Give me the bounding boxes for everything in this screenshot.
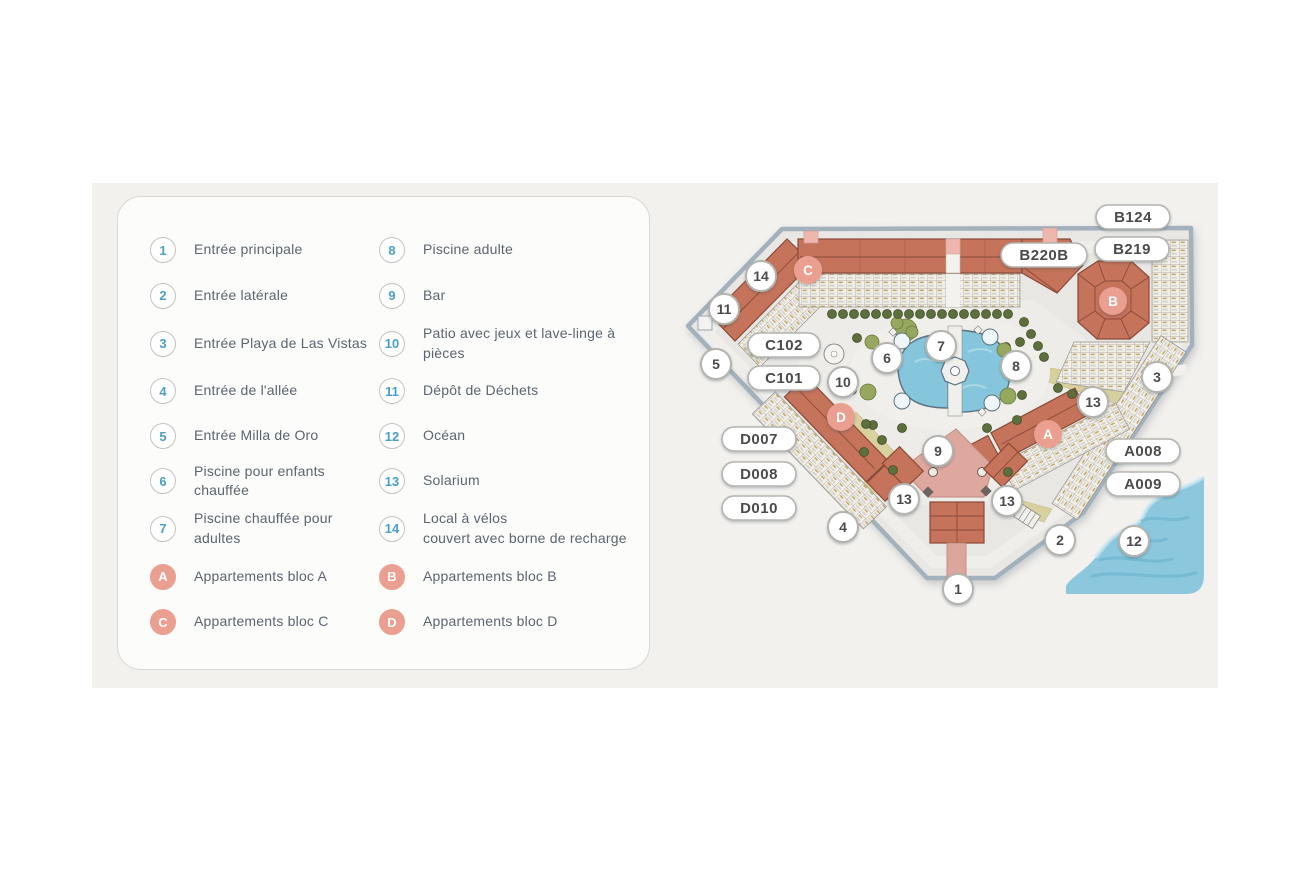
map-marker-14[interactable]: 14 [746, 261, 776, 291]
svg-text:5: 5 [712, 356, 720, 372]
svg-text:4: 4 [839, 519, 847, 535]
map-marker-3[interactable]: 3 [1142, 362, 1172, 392]
svg-text:B124: B124 [1114, 209, 1152, 226]
svg-text:C: C [803, 263, 813, 278]
svg-text:13: 13 [999, 493, 1015, 509]
svg-text:9: 9 [934, 443, 942, 459]
svg-text:C101: C101 [765, 370, 803, 387]
resort-map: B124B219B220BC102C101D007D008D010A008A00… [92, 183, 1218, 688]
map-block-badge-C[interactable]: C [794, 256, 822, 284]
map-block-badge-B[interactable]: B [1099, 287, 1127, 315]
svg-text:B220B: B220B [1019, 247, 1068, 264]
unit-tag-D007[interactable]: D007 [722, 427, 796, 451]
map-marker-5[interactable]: 5 [701, 349, 731, 379]
svg-text:6: 6 [883, 350, 891, 366]
svg-text:10: 10 [835, 374, 851, 390]
svg-text:B: B [1108, 294, 1118, 309]
map-marker-8[interactable]: 8 [1001, 351, 1031, 381]
page: 1Entrée principale2Entrée latérale3Entré… [0, 0, 1310, 875]
svg-text:7: 7 [937, 338, 945, 354]
svg-text:D008: D008 [740, 466, 778, 483]
map-marker-6[interactable]: 6 [872, 343, 902, 373]
svg-text:A008: A008 [1124, 443, 1162, 460]
svg-text:1: 1 [954, 581, 962, 597]
unit-tag-B124[interactable]: B124 [1096, 205, 1170, 229]
svg-text:C102: C102 [765, 337, 803, 354]
map-marker-10[interactable]: 10 [828, 367, 858, 397]
unit-tag-C101[interactable]: C101 [748, 366, 820, 390]
svg-text:12: 12 [1126, 533, 1142, 549]
map-marker-11[interactable]: 11 [709, 294, 739, 324]
svg-text:11: 11 [717, 301, 732, 317]
svg-text:D: D [836, 410, 846, 425]
unit-tag-D008[interactable]: D008 [722, 462, 796, 486]
unit-tag-A008[interactable]: A008 [1106, 439, 1180, 463]
map-marker-1[interactable]: 1 [943, 574, 973, 604]
content-panel: 1Entrée principale2Entrée latérale3Entré… [92, 183, 1218, 688]
unit-tag-D010[interactable]: D010 [722, 496, 796, 520]
map-marker-13[interactable]: 13 [889, 484, 919, 514]
unit-tag-A009[interactable]: A009 [1106, 472, 1180, 496]
svg-text:A009: A009 [1124, 476, 1162, 493]
svg-text:8: 8 [1012, 358, 1020, 374]
map-block-badge-A[interactable]: A [1034, 420, 1062, 448]
svg-text:3: 3 [1153, 369, 1161, 385]
map-marker-13[interactable]: 13 [1078, 387, 1108, 417]
svg-text:B219: B219 [1113, 241, 1151, 258]
map-block-badge-D[interactable]: D [827, 403, 855, 431]
unit-tag-B220B[interactable]: B220B [1001, 243, 1087, 267]
map-marker-13[interactable]: 13 [992, 486, 1022, 516]
svg-text:2: 2 [1056, 532, 1064, 548]
map-marker-7[interactable]: 7 [926, 331, 956, 361]
svg-text:14: 14 [753, 268, 769, 284]
svg-text:D007: D007 [740, 431, 778, 448]
svg-text:A: A [1043, 427, 1053, 442]
svg-text:13: 13 [1085, 394, 1101, 410]
map-marker-9[interactable]: 9 [923, 436, 953, 466]
map-marker-4[interactable]: 4 [828, 512, 858, 542]
map-marker-2[interactable]: 2 [1045, 525, 1075, 555]
svg-text:13: 13 [896, 491, 912, 507]
unit-tag-C102[interactable]: C102 [748, 333, 820, 357]
svg-text:D010: D010 [740, 500, 778, 517]
unit-tag-B219[interactable]: B219 [1095, 237, 1169, 261]
map-marker-12[interactable]: 12 [1119, 526, 1149, 556]
